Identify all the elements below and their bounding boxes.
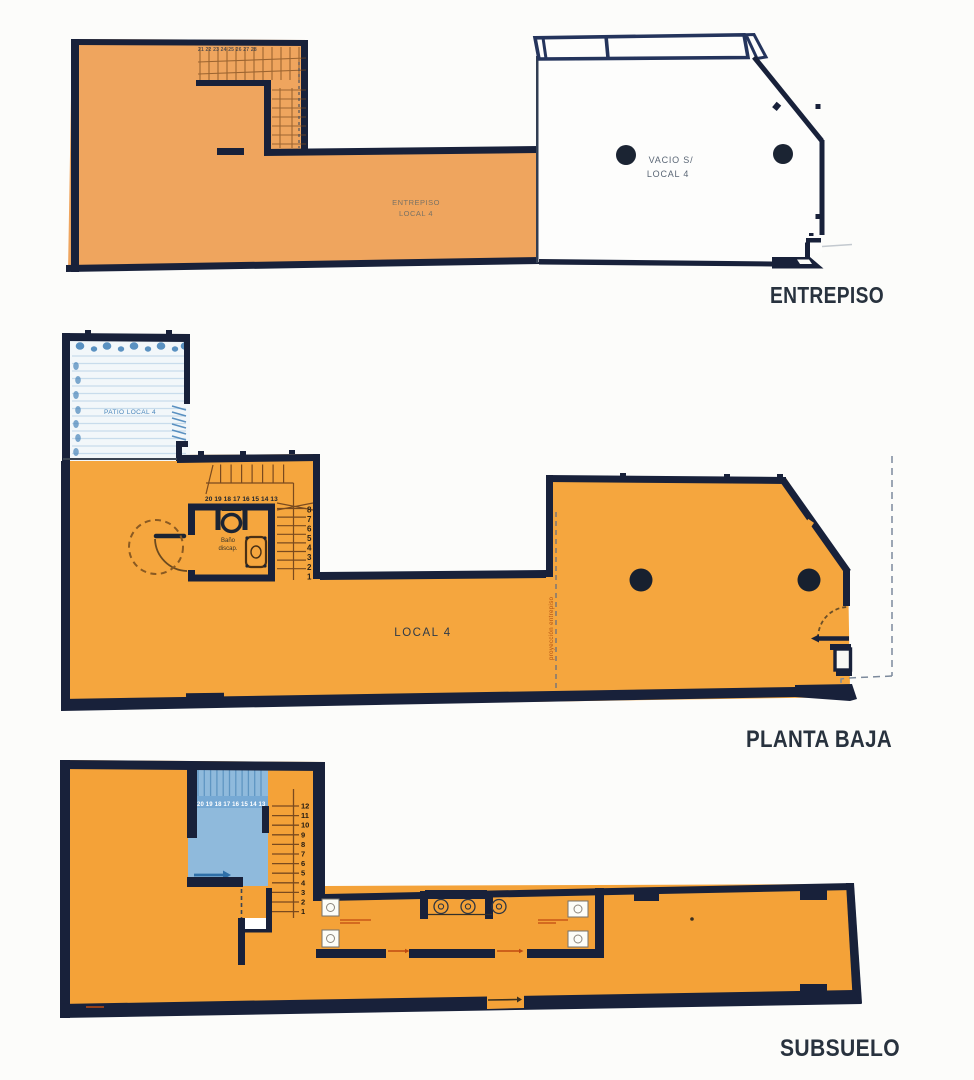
svg-text:Baño: Baño: [221, 538, 236, 544]
svg-text:5: 5: [307, 534, 312, 543]
svg-text:2: 2: [307, 563, 312, 572]
svg-text:discap.: discap.: [218, 546, 237, 552]
svg-text:LOCAL 4: LOCAL 4: [399, 209, 433, 218]
svg-text:12: 12: [301, 802, 309, 811]
svg-text:PATIO LOCAL 4: PATIO LOCAL 4: [104, 409, 156, 416]
svg-text:3: 3: [301, 888, 305, 897]
svg-text:11: 11: [301, 811, 309, 820]
svg-text:20 19 18 17 16 15 14 13: 20 19 18 17 16 15 14 13: [197, 802, 266, 808]
svg-text:7: 7: [301, 850, 305, 859]
svg-text:7: 7: [307, 515, 312, 524]
svg-text:6: 6: [307, 525, 312, 534]
svg-text:ENTREPISO: ENTREPISO: [770, 282, 884, 308]
svg-text:proyección entrepiso: proyección entrepiso: [549, 596, 555, 660]
svg-text:20 19 18 17 16 15 14 13: 20 19 18 17 16 15 14 13: [205, 496, 278, 503]
svg-text:LOCAL 4: LOCAL 4: [394, 627, 451, 639]
svg-text:PLANTA BAJA: PLANTA BAJA: [746, 726, 892, 753]
svg-text:ENTREPISO: ENTREPISO: [392, 198, 440, 207]
svg-text:1: 1: [301, 907, 305, 916]
svg-text:2: 2: [301, 898, 305, 907]
svg-text:4: 4: [307, 544, 312, 553]
svg-text:8: 8: [307, 506, 312, 515]
svg-text:21 22 23 24 25 26 27 28: 21 22 23 24 25 26 27 28: [198, 47, 257, 53]
svg-text:1: 1: [307, 572, 312, 581]
svg-text:LOCAL 4: LOCAL 4: [647, 169, 689, 179]
svg-text:SUBSUELO: SUBSUELO: [780, 1035, 900, 1062]
svg-text:10: 10: [301, 821, 309, 830]
svg-text:6: 6: [301, 859, 305, 868]
svg-text:3: 3: [307, 553, 312, 562]
svg-text:VACIO S/: VACIO S/: [649, 155, 694, 165]
svg-text:8: 8: [301, 840, 305, 849]
svg-text:5: 5: [301, 869, 305, 878]
svg-text:9: 9: [301, 830, 305, 839]
